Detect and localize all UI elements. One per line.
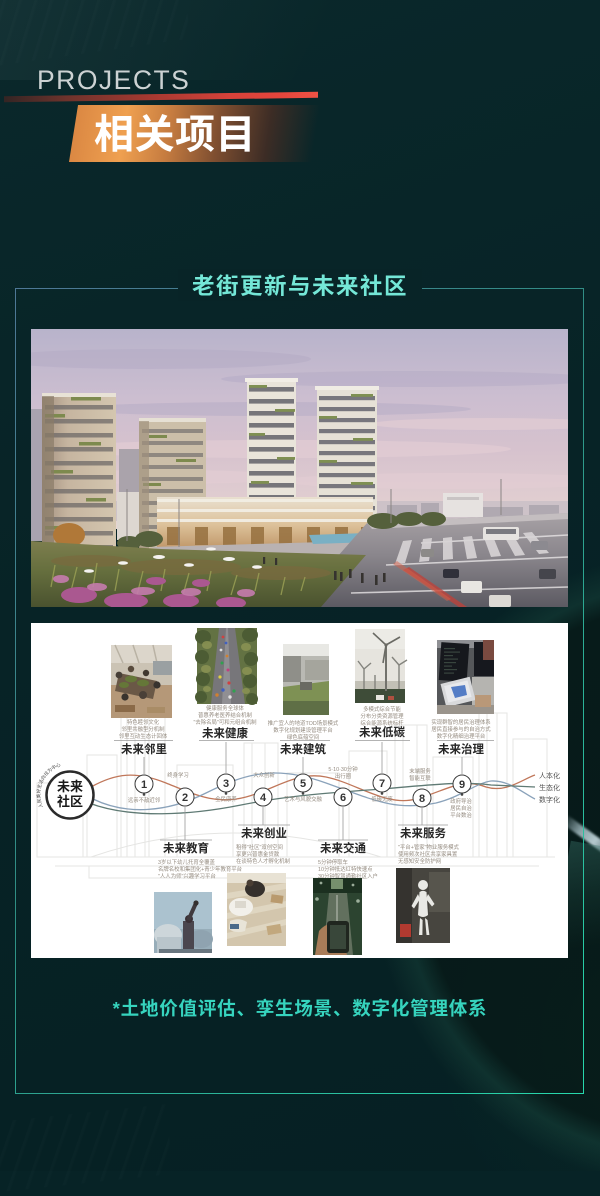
svg-text:末端服务: 末端服务 bbox=[409, 767, 431, 775]
svg-text:9: 9 bbox=[459, 779, 465, 791]
svg-text:分布分类资源管理: 分布分类资源管理 bbox=[360, 712, 404, 720]
svg-text:绿色底蕴空间: 绿色底蕴空间 bbox=[287, 733, 319, 741]
svg-text:8: 8 bbox=[419, 793, 425, 805]
svg-text:艺术与风貌交融: 艺术与风貌交融 bbox=[284, 795, 322, 803]
svg-text:推广宜人的地道TOD场景模式: 推广宜人的地道TOD场景模式 bbox=[268, 719, 339, 727]
svg-text:特色睦邻文化: 特色睦邻文化 bbox=[127, 718, 160, 726]
svg-text:"平台+管家"物业服务模式: "平台+管家"物业服务模式 bbox=[398, 843, 459, 851]
svg-text:终身学习: 终身学习 bbox=[167, 771, 189, 779]
svg-text:数字化: 数字化 bbox=[539, 795, 560, 804]
svg-text:未来邻里: 未来邻里 bbox=[121, 742, 167, 756]
svg-text:低碳无废: 低碳无废 bbox=[371, 795, 393, 803]
svg-text:"人人为师"兴趣学习平台: "人人为师"兴趣学习平台 bbox=[158, 872, 216, 880]
svg-text:社区: 社区 bbox=[57, 794, 83, 809]
svg-text:5: 5 bbox=[300, 778, 306, 790]
svg-text:实现群智的居民治理体系: 实现群智的居民治理体系 bbox=[431, 718, 491, 726]
svg-text:享更兴普惠金贷款: 享更兴普惠金贷款 bbox=[236, 850, 280, 858]
svg-text:邻里互动生态计回体: 邻里互动生态计回体 bbox=[119, 732, 168, 740]
svg-text:邻里共融型分机制: 邻里共融型分机制 bbox=[121, 725, 164, 733]
svg-text:名牌名校和集团化+青少年教育平台: 名牌名校和集团化+青少年教育平台 bbox=[158, 865, 242, 873]
svg-text:6: 6 bbox=[340, 792, 346, 804]
svg-text:10分钟抵达红特快速点: 10分钟抵达红特快速点 bbox=[318, 865, 373, 873]
svg-text:多模式综合节能: 多模式综合节能 bbox=[363, 705, 401, 713]
svg-text:2: 2 bbox=[182, 792, 188, 804]
svg-text:居民自治: 居民自治 bbox=[450, 804, 472, 812]
svg-text:未来教育: 未来教育 bbox=[163, 841, 209, 855]
svg-text:大众创新: 大众创新 bbox=[253, 771, 275, 779]
svg-text:"去除名局"可和元组合机制: "去除名局"可和元组合机制 bbox=[193, 718, 256, 726]
svg-text:居民直接参与的自治方式: 居民直接参与的自治方式 bbox=[431, 725, 491, 733]
svg-text:1: 1 bbox=[141, 779, 147, 791]
svg-text:4: 4 bbox=[260, 792, 267, 804]
svg-text:未来交通: 未来交通 bbox=[320, 841, 366, 855]
svg-text:使用频次社区共享家具置: 使用频次社区共享家具置 bbox=[398, 850, 458, 858]
svg-text:数字化规划建设管理平台: 数字化规划建设管理平台 bbox=[273, 726, 332, 734]
svg-text:智能互联: 智能互联 bbox=[409, 774, 431, 782]
svg-text:5·10·30分钟: 5·10·30分钟 bbox=[328, 765, 358, 773]
svg-text:在谈特色人才孵化机制: 在谈特色人才孵化机制 bbox=[236, 857, 290, 865]
svg-text:政府导治: 政府导治 bbox=[450, 797, 472, 805]
svg-text:远亲不敌近邻: 远亲不敌近邻 bbox=[128, 796, 161, 804]
svg-text:3: 3 bbox=[223, 778, 229, 790]
svg-text:无感知安全防护网: 无感知安全防护网 bbox=[398, 857, 441, 865]
svg-text:未来服务: 未来服务 bbox=[400, 826, 446, 840]
svg-text:出行圈: 出行圈 bbox=[335, 772, 351, 780]
svg-text:3岁以下幼儿托育全覆盖: 3岁以下幼儿托育全覆盖 bbox=[158, 858, 216, 866]
svg-text:数字化精细治理平台: 数字化精细治理平台 bbox=[437, 732, 486, 740]
svg-text:全民康养: 全民康养 bbox=[215, 795, 237, 803]
svg-text:平台数治: 平台数治 bbox=[450, 811, 472, 819]
svg-text:健康服务全球体: 健康服务全球体 bbox=[206, 704, 244, 712]
svg-text:租得"社区"双创空间: 租得"社区"双创空间 bbox=[236, 843, 283, 851]
svg-text:未来建筑: 未来建筑 bbox=[280, 742, 326, 756]
svg-text:未来低碳: 未来低碳 bbox=[359, 725, 405, 739]
svg-text:未来创业: 未来创业 bbox=[241, 826, 287, 840]
svg-text:未来健康: 未来健康 bbox=[202, 726, 248, 740]
svg-text:生态化: 生态化 bbox=[539, 783, 560, 792]
svg-text:普惠养老医养结合机制: 普惠养老医养结合机制 bbox=[198, 711, 252, 719]
svg-text:未来治理: 未来治理 bbox=[438, 742, 484, 756]
svg-text:7: 7 bbox=[379, 778, 385, 790]
svg-text:未来: 未来 bbox=[57, 779, 83, 794]
svg-text:综合能源系统标杆: 综合能源系统标杆 bbox=[360, 719, 404, 727]
svg-text:5分钟停取车: 5分钟停取车 bbox=[318, 858, 349, 866]
svg-text:人本化: 人本化 bbox=[539, 771, 560, 780]
